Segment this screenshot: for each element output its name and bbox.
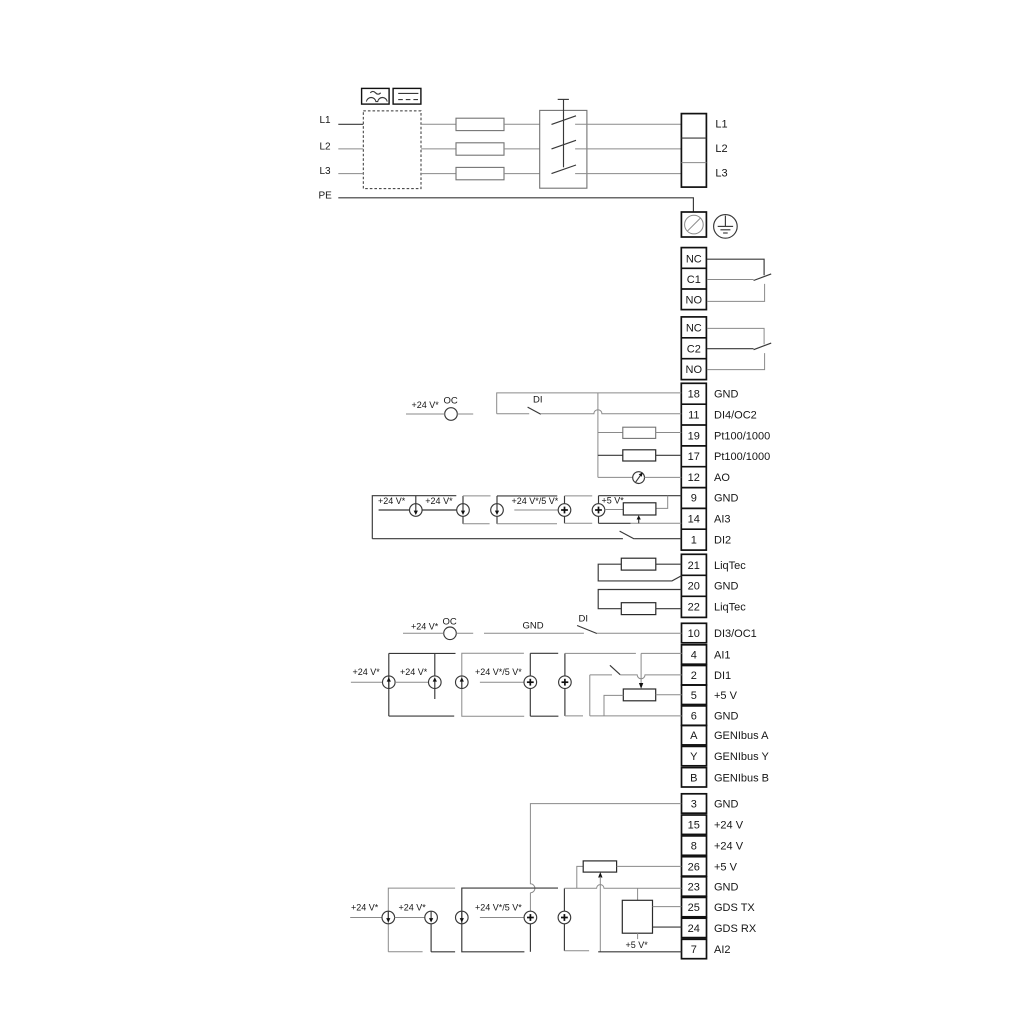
svg-text:+24 V*: +24 V* [412,400,440,410]
svg-text:DI1: DI1 [714,670,731,682]
svg-text:26: 26 [688,861,700,873]
svg-text:Pt100/1000: Pt100/1000 [714,430,770,442]
svg-text:L1: L1 [320,115,332,126]
svg-text:B: B [690,772,697,784]
svg-text:AI2: AI2 [714,944,731,956]
svg-text:NO: NO [686,295,703,307]
svg-text:C1: C1 [687,274,701,286]
svg-text:GENIbus Y: GENIbus Y [714,751,769,763]
svg-text:AI3: AI3 [714,514,731,526]
svg-text:3: 3 [691,799,697,811]
svg-text:A: A [690,730,698,742]
svg-text:6: 6 [691,711,697,723]
svg-text:GND: GND [714,389,739,401]
svg-text:DI: DI [579,614,589,625]
svg-text:+24 V: +24 V [714,820,744,832]
svg-text:5: 5 [691,690,697,702]
svg-text:AO: AO [714,472,730,484]
svg-text:L2: L2 [715,143,727,155]
svg-text:GND: GND [714,493,739,505]
svg-text:DI3/OC1: DI3/OC1 [714,628,757,640]
svg-text:GND: GND [714,581,739,593]
svg-text:4: 4 [691,650,697,662]
svg-text:8: 8 [691,841,697,853]
svg-text:+24 V: +24 V [714,841,744,853]
svg-text:+24 V*/5 V*: +24 V*/5 V* [475,667,522,677]
svg-text:L2: L2 [320,142,332,153]
svg-text:GENIbus A: GENIbus A [714,730,769,742]
svg-text:L3: L3 [320,166,332,177]
svg-text:+24 V*: +24 V* [351,903,379,913]
svg-text:+24 V*: +24 V* [425,496,453,506]
svg-text:OC: OC [444,396,458,407]
svg-text:10: 10 [688,628,700,640]
svg-text:GND: GND [714,882,739,894]
svg-text:NC: NC [686,323,702,335]
svg-text:L1: L1 [715,119,727,131]
svg-text:+24 V*: +24 V* [411,622,439,632]
svg-text:PE: PE [319,191,333,202]
svg-text:C2: C2 [687,343,701,355]
svg-text:NO: NO [686,364,703,376]
svg-text:14: 14 [688,514,700,526]
svg-text:+5 V: +5 V [714,861,738,873]
svg-text:Y: Y [690,751,698,763]
svg-text:22: 22 [688,602,700,614]
svg-text:+24 V*: +24 V* [400,667,428,677]
svg-text:GDS TX: GDS TX [714,902,755,914]
svg-text:+24 V*: +24 V* [399,903,427,913]
svg-text:11: 11 [688,410,699,422]
svg-text:OC: OC [443,617,457,628]
svg-text:18: 18 [688,389,700,401]
svg-text:20: 20 [688,581,700,593]
svg-text:19: 19 [688,430,700,442]
svg-text:7: 7 [691,944,697,956]
svg-text:15: 15 [688,820,700,832]
svg-text:+24 V*/5 V*: +24 V*/5 V* [512,496,559,506]
svg-text:17: 17 [688,451,700,463]
svg-text:23: 23 [688,882,700,894]
svg-text:Pt100/1000: Pt100/1000 [714,451,770,463]
svg-text:+5 V*: +5 V* [602,496,625,506]
svg-text:+24 V*/5 V*: +24 V*/5 V* [475,903,522,913]
svg-text:LiqTec: LiqTec [714,602,746,614]
svg-text:12: 12 [688,472,700,484]
svg-text:GND: GND [714,711,739,723]
svg-text:GDS RX: GDS RX [714,923,757,935]
svg-text:9: 9 [691,493,697,505]
svg-text:GND: GND [523,621,544,632]
svg-text:24: 24 [688,923,700,935]
svg-text:GENIbus B: GENIbus B [714,772,769,784]
svg-text:DI: DI [533,395,543,406]
svg-text:NC: NC [686,253,702,265]
svg-text:1: 1 [691,534,697,546]
svg-text:GND: GND [714,799,739,811]
svg-text:21: 21 [688,560,700,572]
svg-text:L3: L3 [715,168,727,180]
svg-text:+24 V*: +24 V* [378,496,406,506]
svg-text:25: 25 [688,902,700,914]
svg-text:AI1: AI1 [714,650,731,662]
svg-text:LiqTec: LiqTec [714,560,746,572]
svg-text:DI2: DI2 [714,534,731,546]
svg-text:+5 V: +5 V [714,690,738,702]
svg-text:2: 2 [691,670,697,682]
svg-text:+5 V*: +5 V* [626,940,649,950]
svg-text:+24 V*: +24 V* [353,667,381,677]
svg-text:DI4/OC2: DI4/OC2 [714,410,757,422]
